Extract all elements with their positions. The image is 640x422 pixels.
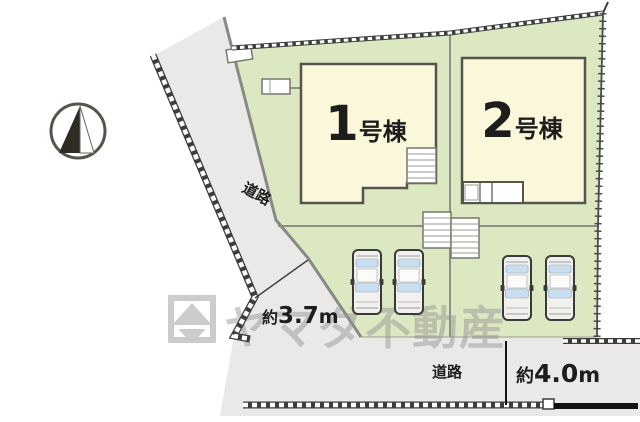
car-4 (544, 256, 577, 320)
car-2 (393, 250, 426, 314)
building-1: 1号棟 (301, 64, 436, 203)
utility-box-2 (262, 79, 290, 94)
site-plan-drawing: 1号棟 2号棟 ヤマダ不動産 (0, 0, 640, 422)
north-arrow-icon (51, 104, 105, 158)
road-label-bottom: 道路 (432, 363, 463, 381)
site-plan: 1号棟 2号棟 ヤマダ不動産 (0, 0, 640, 422)
building-2: 2号棟 (462, 58, 585, 203)
car-3 (501, 256, 534, 320)
car-1 (351, 250, 384, 314)
